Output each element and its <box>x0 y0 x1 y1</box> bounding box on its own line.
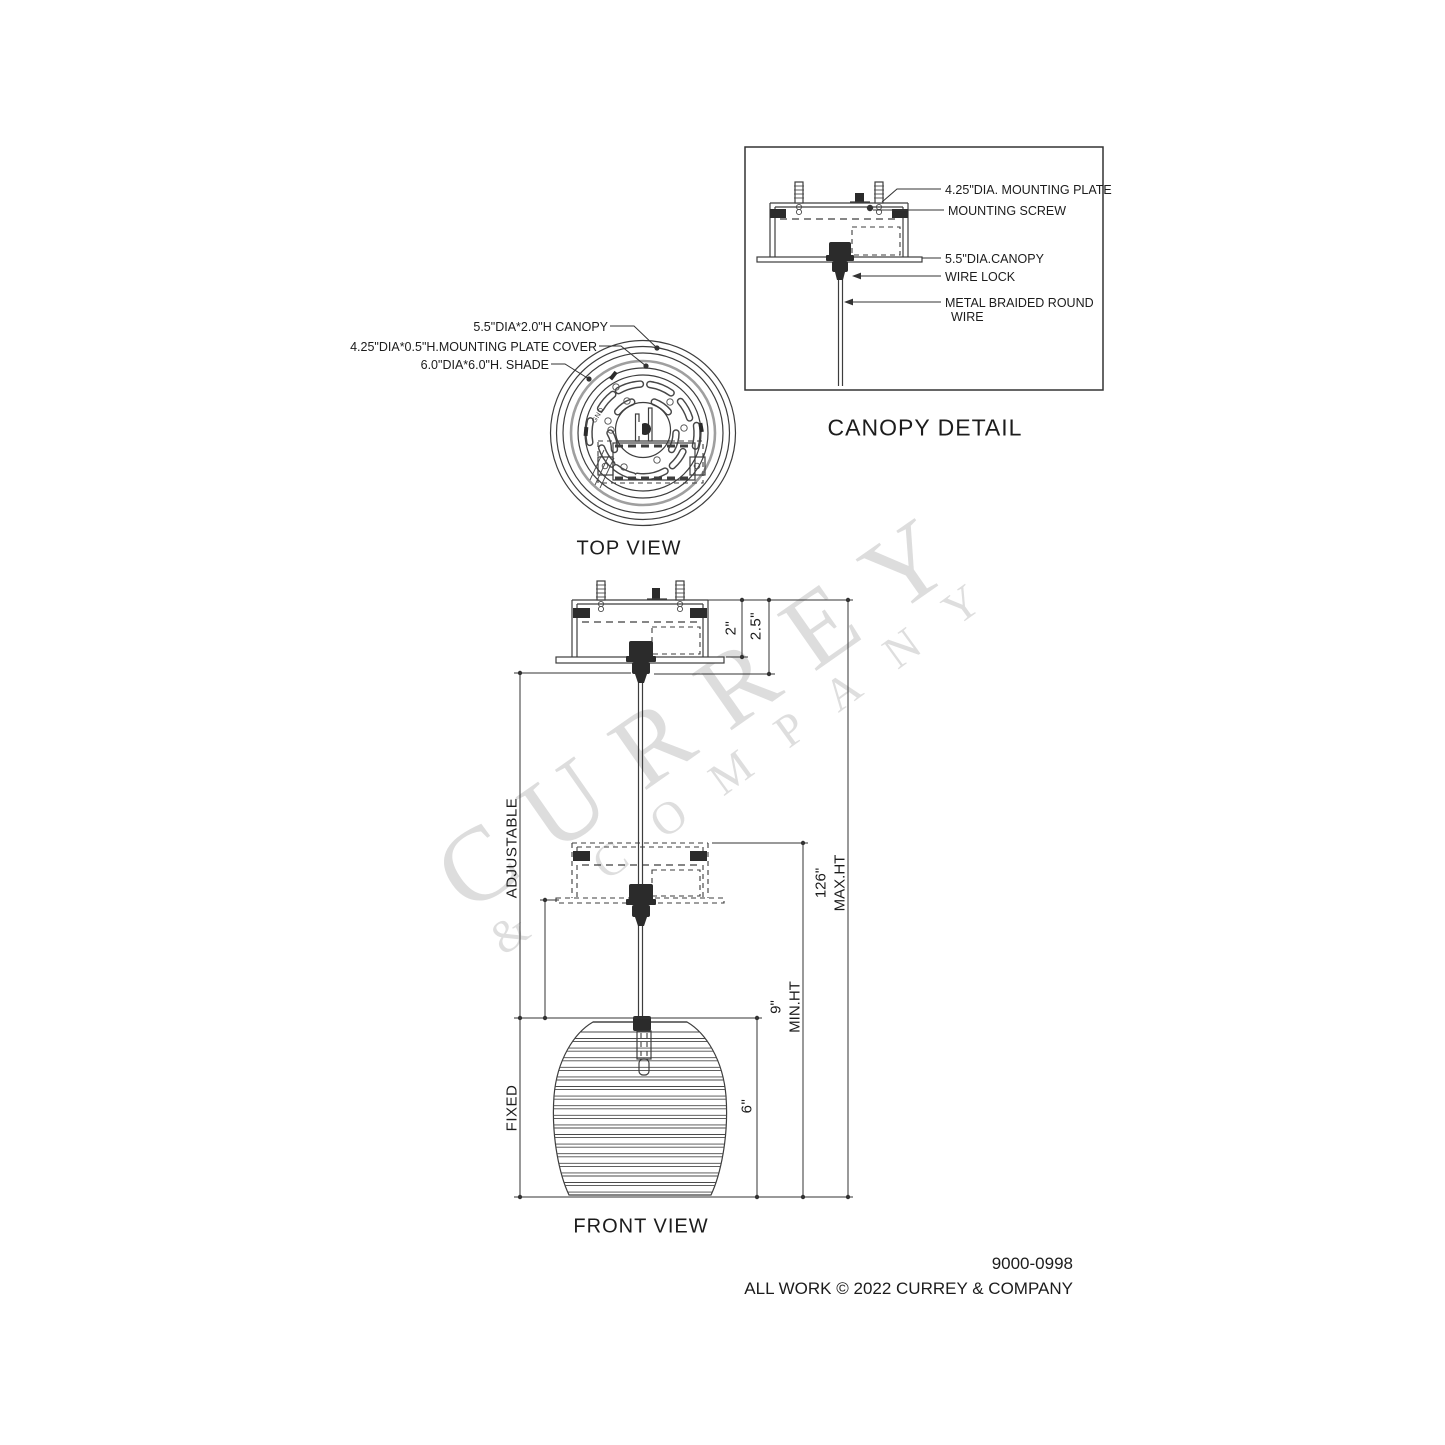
label-mounting-screw: MOUNTING SCREW <box>948 204 1066 218</box>
dim-min-height-value: 9" <box>767 981 786 1033</box>
dim-adjustable: ADJUSTABLE <box>504 798 521 899</box>
dim-fixed: FIXED <box>504 1085 521 1132</box>
dim-shade-height: 6" <box>739 1099 756 1114</box>
wire-lock-icon <box>826 242 854 280</box>
drawing-sheet: CURREY & COMPANY <box>0 0 1445 1445</box>
label-topview-plate-cover: 4.25"DIA*0.5"H.MOUNTING PLATE COVER <box>350 340 597 354</box>
copyright-text: ALL WORK © 2022 CURREY & COMPANY <box>744 1279 1073 1299</box>
dim-min-height: 9" MIN.HT <box>767 981 805 1033</box>
model-number: 9000-0998 <box>992 1254 1073 1274</box>
canopy-min-position <box>556 843 724 926</box>
top-view-title: TOP VIEW <box>576 538 681 561</box>
technical-drawing-svg <box>0 0 1445 1445</box>
canopy-detail-title: CANOPY DETAIL <box>828 415 1023 442</box>
dim-canopy-total: 2.5" <box>748 612 765 640</box>
front-view-title: FRONT VIEW <box>573 1216 708 1239</box>
label-canopy-dia: 5.5"DIA.CANOPY <box>945 252 1044 266</box>
dim-max-height: 126" MAX.HT <box>812 855 850 912</box>
mounting-screw-icon <box>850 193 873 211</box>
label-wire-lock: WIRE LOCK <box>945 270 1015 284</box>
shade-drawing <box>548 1016 732 1195</box>
top-view-drawing <box>551 326 736 526</box>
label-mounting-plate: 4.25"DIA. MOUNTING PLATE <box>945 183 1112 197</box>
label-wire-line2: WIRE <box>951 310 984 324</box>
label-wire-line1: METAL BRAIDED ROUND <box>945 296 1094 310</box>
dim-max-height-unit: MAX.HT <box>831 855 850 912</box>
label-topview-shade: 6.0"DIA*6.0"H. SHADE <box>421 358 549 372</box>
dim-min-height-unit: MIN.HT <box>786 981 805 1033</box>
label-topview-canopy: 5.5"DIA*2.0"H CANOPY <box>473 320 608 334</box>
dim-canopy-height: 2" <box>723 621 740 636</box>
dim-max-height-value: 126" <box>812 855 831 912</box>
